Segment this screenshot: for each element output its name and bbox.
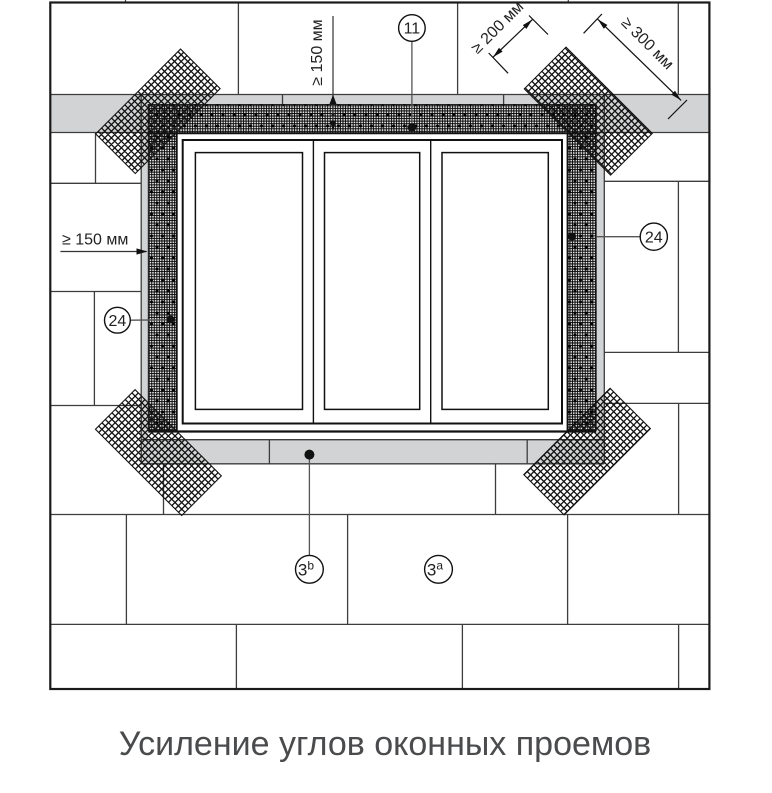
svg-text:24: 24 [109, 313, 127, 330]
svg-text:24: 24 [645, 230, 663, 247]
svg-text:≥ 150 мм: ≥ 150 мм [62, 232, 128, 249]
svg-text:Усиление углов оконных проемов: Усиление углов оконных проемов [119, 725, 651, 763]
svg-text:11: 11 [404, 21, 421, 38]
svg-text:≥ 150 мм: ≥ 150 мм [309, 19, 326, 85]
